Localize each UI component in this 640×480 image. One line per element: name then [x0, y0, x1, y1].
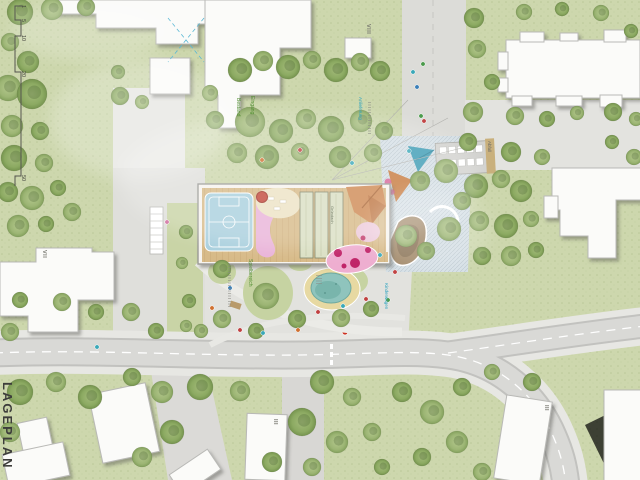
building-far-southeast: [604, 390, 640, 480]
site-plan: LAGEPLAN 1 5 10 20 50 VIII VII III III B…: [0, 0, 640, 480]
crosswalk: [330, 344, 333, 365]
site-plan-drawing: [0, 0, 640, 480]
building-northeast-slab: [498, 30, 640, 107]
